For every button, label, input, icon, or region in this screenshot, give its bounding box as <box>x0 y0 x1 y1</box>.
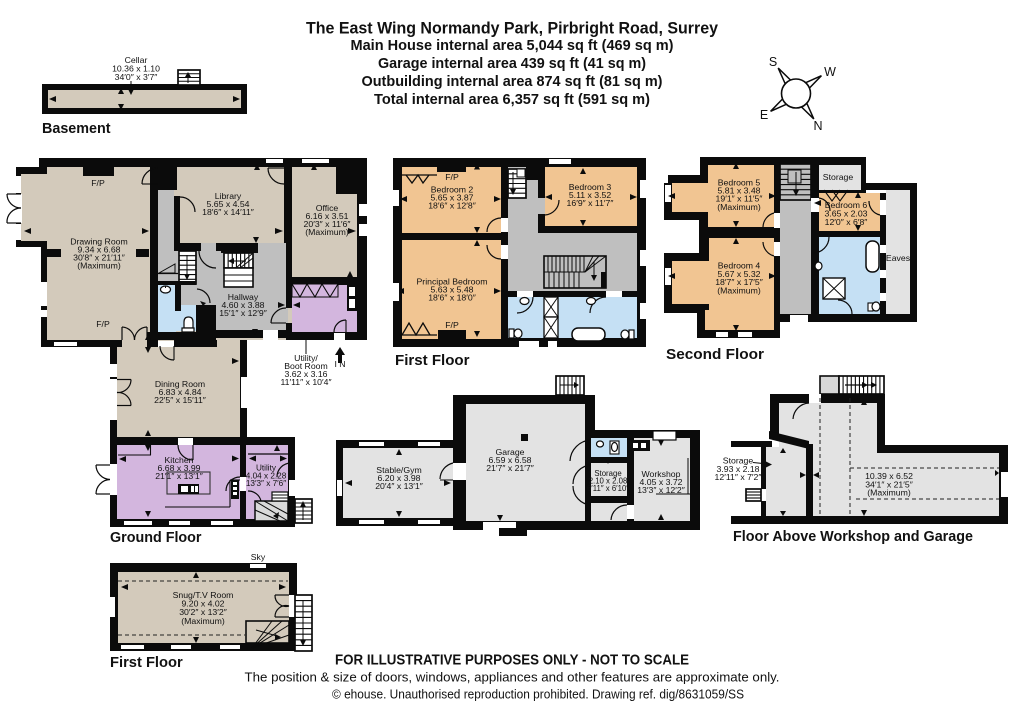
svg-text:18′6″ x 14′11″: 18′6″ x 14′11″ <box>202 207 254 217</box>
svg-text:F/P: F/P <box>96 319 110 329</box>
svg-text:(Maximum): (Maximum) <box>717 202 761 212</box>
svg-text:© ehouse. Unauthorised reprodu: © ehouse. Unauthorised reproduction proh… <box>332 687 744 702</box>
svg-text:Sky: Sky <box>251 552 266 562</box>
svg-text:Eaves: Eaves <box>886 253 911 263</box>
svg-text:Main House internal area 5,044: Main House internal area 5,044 sq ft (46… <box>351 38 674 54</box>
svg-text:FOR ILLUSTRATIVE PURPOSES ONLY: FOR ILLUSTRATIVE PURPOSES ONLY - NOT TO … <box>335 653 689 669</box>
svg-text:First Floor: First Floor <box>110 654 183 671</box>
svg-text:F/P: F/P <box>445 320 459 330</box>
svg-text:Floor Above Workshop and Garag: Floor Above Workshop and Garage <box>733 528 973 545</box>
svg-text:20′4″ x 13′1″: 20′4″ x 13′1″ <box>375 481 423 491</box>
svg-text:F/P: F/P <box>445 172 459 182</box>
svg-text:11′11″ x 10′4″: 11′11″ x 10′4″ <box>280 377 331 387</box>
svg-text:Outbuilding internal area 874: Outbuilding internal area 874 sq ft (81 … <box>362 74 663 90</box>
svg-text:W: W <box>824 65 836 79</box>
svg-text:6′11″ x 6′10″: 6′11″ x 6′10″ <box>587 484 629 493</box>
svg-text:18′6″ x 12′8″: 18′6″ x 12′8″ <box>428 201 476 211</box>
svg-text:(Maximum): (Maximum) <box>181 616 225 626</box>
svg-text:F/P: F/P <box>91 178 105 188</box>
svg-text:18′6″ x 18′0″: 18′6″ x 18′0″ <box>428 293 476 303</box>
svg-text:N: N <box>813 119 822 133</box>
svg-text:The position & size of doors,: The position & size of doors, windows, a… <box>245 670 780 685</box>
svg-text:21′7″ x 21′7″: 21′7″ x 21′7″ <box>486 463 534 473</box>
svg-text:13′3″ x 7′6″: 13′3″ x 7′6″ <box>246 479 286 488</box>
svg-text:S: S <box>769 55 777 69</box>
svg-text:E: E <box>760 108 768 122</box>
svg-text:Storage: Storage <box>823 172 854 182</box>
svg-text:12′11″ x 7′2″: 12′11″ x 7′2″ <box>715 472 762 482</box>
svg-text:I N: I N <box>334 359 345 369</box>
svg-text:(Maximum): (Maximum) <box>305 227 349 237</box>
svg-text:22′5″ x 15′11″: 22′5″ x 15′11″ <box>154 395 206 405</box>
svg-text:Basement: Basement <box>42 120 111 137</box>
svg-text:Ground Floor: Ground Floor <box>110 529 202 546</box>
svg-text:15′1″ x 12′9″: 15′1″ x 12′9″ <box>219 308 267 318</box>
svg-text:Total internal area 6,357 sq f: Total internal area 6,357 sq ft (591 sq … <box>374 92 650 108</box>
svg-text:21′1″ x 13′1″: 21′1″ x 13′1″ <box>155 471 203 481</box>
svg-text:Second Floor: Second Floor <box>666 346 764 363</box>
svg-text:(Maximum): (Maximum) <box>77 261 121 271</box>
svg-text:Garage internal area 439 sq ft: Garage internal area 439 sq ft (41 sq m) <box>378 56 646 72</box>
svg-text:12′0″ x 6′8″: 12′0″ x 6′8″ <box>825 217 868 227</box>
svg-text:The East Wing Normandy Park, P: The East Wing Normandy Park, Pirbright R… <box>306 19 719 38</box>
svg-text:(Maximum): (Maximum) <box>717 285 761 295</box>
svg-text:First Floor: First Floor <box>395 352 470 369</box>
svg-text:34′0″ x 3′7″: 34′0″ x 3′7″ <box>115 72 158 82</box>
svg-text:16′9″ x 11′7″: 16′9″ x 11′7″ <box>567 198 614 208</box>
svg-text:(Maximum): (Maximum) <box>867 488 911 498</box>
